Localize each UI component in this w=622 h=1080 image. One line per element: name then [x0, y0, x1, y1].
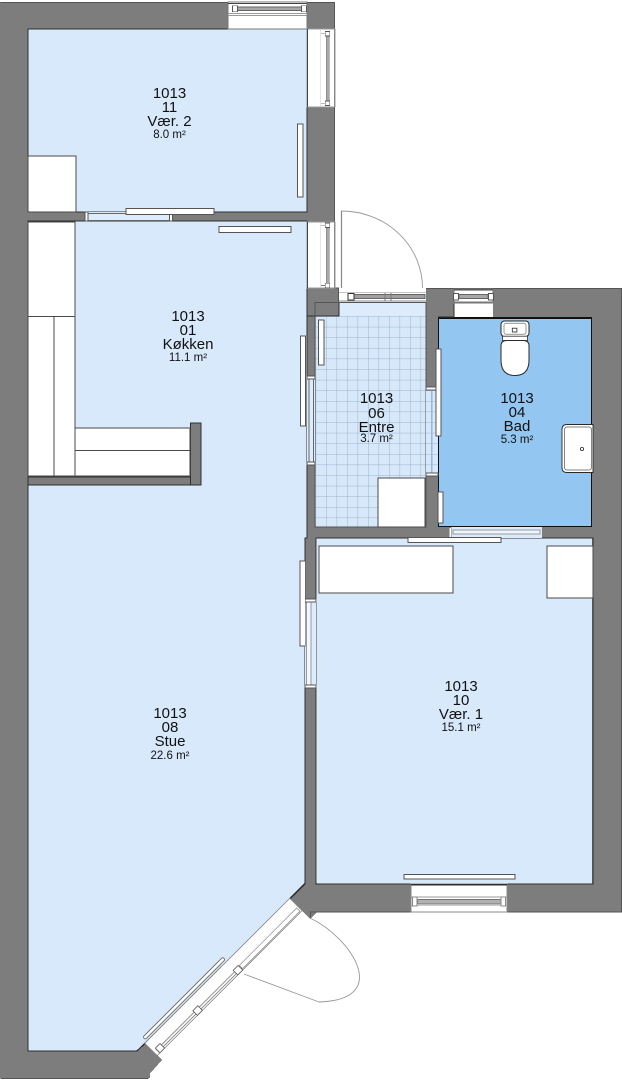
svg-text:11.1 m²: 11.1 m² — [169, 352, 207, 364]
svg-text:3.7 m²: 3.7 m² — [360, 433, 393, 445]
svg-text:Køkken: Køkken — [163, 336, 214, 353]
svg-text:22.6 m²: 22.6 m² — [151, 750, 190, 762]
svg-text:5.3 m²: 5.3 m² — [501, 434, 534, 446]
svg-text:Bad: Bad — [504, 418, 531, 435]
svg-text:Stue: Stue — [155, 733, 186, 750]
svg-text:Vær. 1: Vær. 1 — [439, 706, 483, 723]
svg-text:Vær. 2: Vær. 2 — [147, 113, 191, 130]
svg-text:15.1 m²: 15.1 m² — [442, 722, 481, 734]
svg-text:8.0 m²: 8.0 m² — [153, 129, 186, 141]
